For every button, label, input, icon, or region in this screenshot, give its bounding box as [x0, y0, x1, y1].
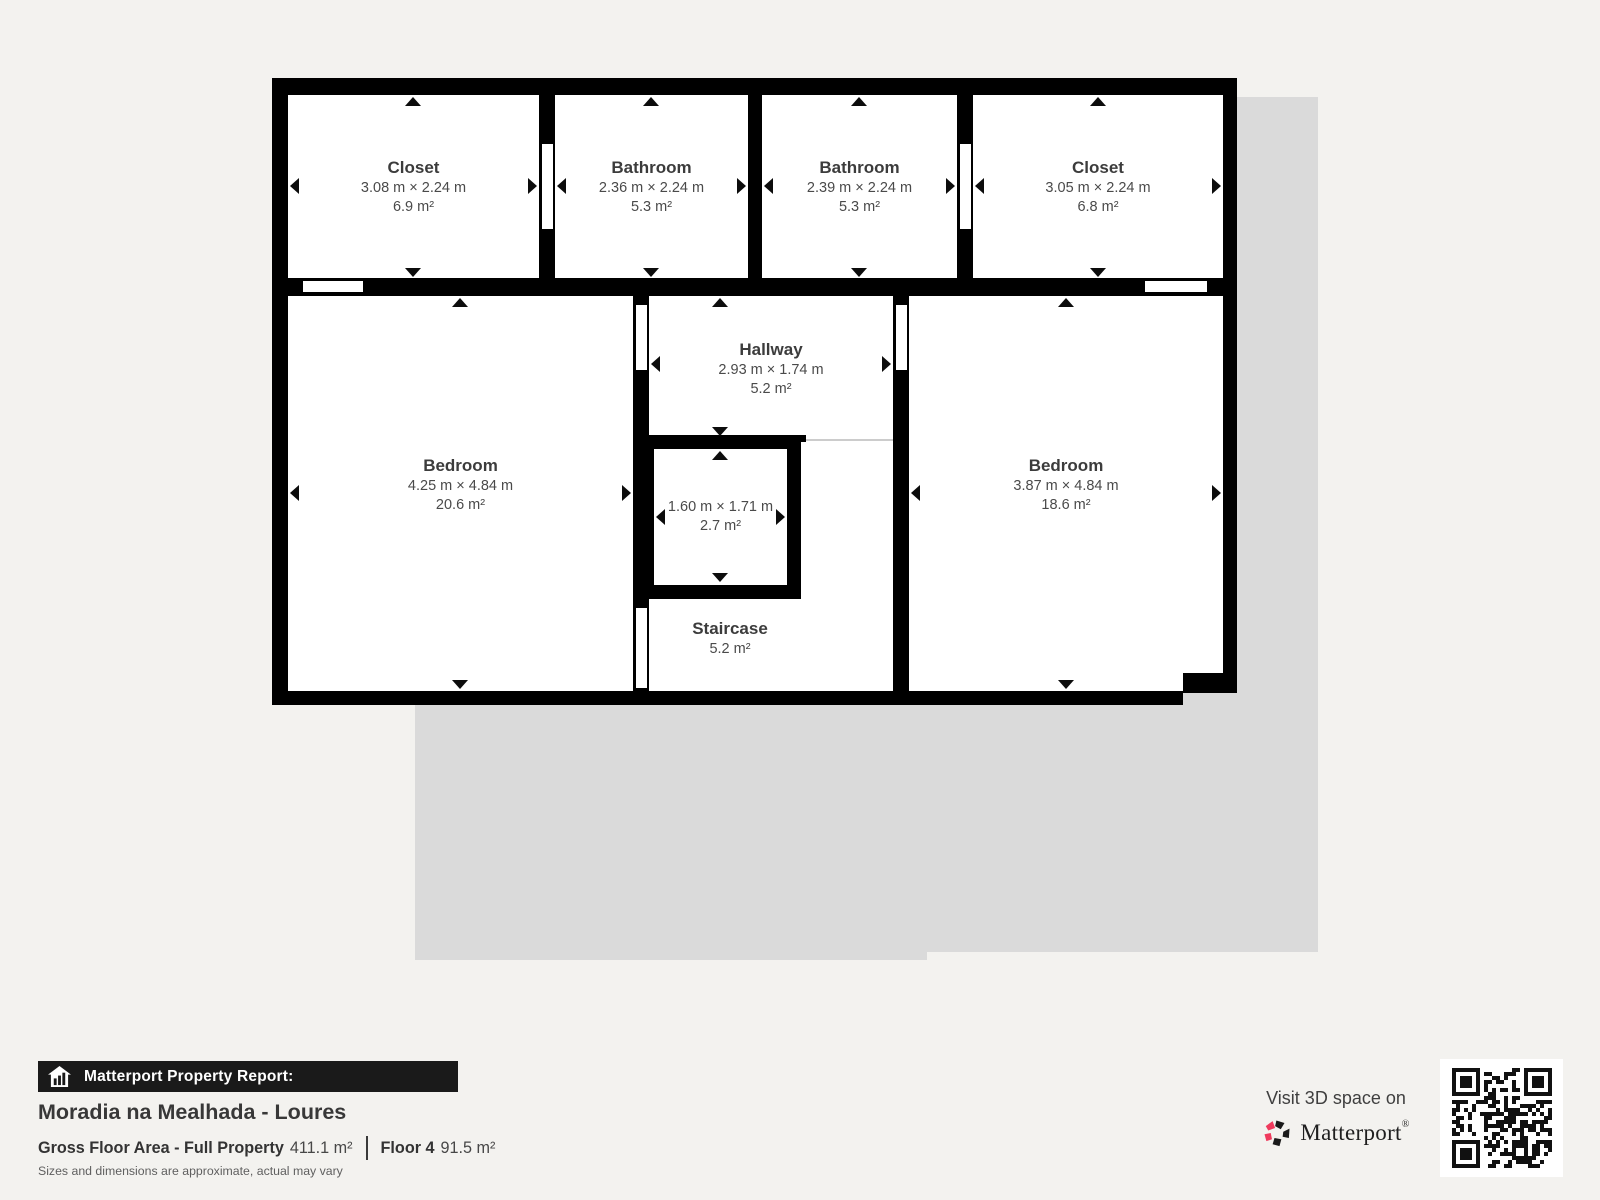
room-label-bedroom-right: Bedroom 3.87 m × 4.84 m 18.6 m² [909, 296, 1223, 672]
property-outline-silhouette [1237, 97, 1318, 705]
dimension-arrow-up-icon [1058, 298, 1074, 307]
qr-code [1452, 1068, 1552, 1168]
room-name: Bedroom [1029, 454, 1104, 477]
dimension-arrow-left-icon [290, 178, 299, 194]
room-area: 5.3 m² [839, 198, 880, 217]
room-area: 5.2 m² [750, 380, 791, 399]
door-opening [636, 608, 647, 688]
room-dimensions: 3.87 m × 4.84 m [1013, 477, 1118, 496]
room-dimensions: 2.39 m × 2.24 m [807, 179, 912, 198]
matterport-wordmark: Matterport® [1300, 1120, 1409, 1146]
room-area: 6.9 m² [393, 198, 434, 217]
gross-floor-area-label: Gross Floor Area - Full Property [38, 1139, 284, 1158]
dimension-arrow-down-icon [643, 268, 659, 277]
dimension-arrow-left-icon [290, 485, 299, 501]
dimension-arrow-up-icon [452, 298, 468, 307]
disclaimer-text: Sizes and dimensions are approximate, ac… [38, 1164, 343, 1178]
floor-label: Floor 4 [381, 1139, 435, 1158]
room-dimensions: 2.36 m × 2.24 m [599, 179, 704, 198]
door-opening [896, 305, 907, 370]
room-dimensions: 3.05 m × 2.24 m [1045, 179, 1150, 198]
dimension-arrow-down-icon [452, 680, 468, 689]
divider [366, 1136, 368, 1160]
property-name: Moradia na Mealhada - Loures [38, 1100, 346, 1125]
dimension-arrow-right-icon [528, 178, 537, 194]
room-name: Bathroom [611, 156, 691, 179]
room-name: Staircase [692, 617, 768, 640]
room-name: Bathroom [819, 156, 899, 179]
dimension-arrow-down-icon [851, 268, 867, 277]
room-label-small-room: 1.60 m × 1.71 m 2.7 m² [654, 449, 787, 585]
property-outline-silhouette [415, 952, 927, 960]
report-banner: Matterport Property Report: [38, 1061, 458, 1092]
dimension-arrow-right-icon [1212, 485, 1221, 501]
dimension-arrow-right-icon [737, 178, 746, 194]
house-chart-icon [48, 1066, 71, 1087]
dimension-arrow-down-icon [712, 427, 728, 436]
room-name: Closet [1072, 156, 1124, 179]
dimension-arrow-left-icon [557, 178, 566, 194]
dimension-arrow-right-icon [622, 485, 631, 501]
room-area: 20.6 m² [436, 496, 485, 515]
door-opening [303, 281, 363, 292]
room-area: 5.3 m² [631, 198, 672, 217]
room-area: 6.8 m² [1077, 198, 1118, 217]
matterport-pinwheel-icon [1262, 1118, 1292, 1148]
gross-floor-area-value: 411.1 m² [290, 1139, 353, 1158]
visit-3d-text: Visit 3D space on [1266, 1088, 1406, 1109]
property-outline-silhouette [1183, 693, 1237, 705]
dimension-arrow-down-icon [712, 573, 728, 582]
qr-card [1440, 1059, 1563, 1177]
room-area: 5.2 m² [709, 640, 750, 659]
dimension-arrow-left-icon [911, 485, 920, 501]
dimension-arrow-left-icon [764, 178, 773, 194]
room-area: 18.6 m² [1041, 496, 1090, 515]
dimension-arrow-down-icon [1058, 680, 1074, 689]
dimension-arrow-up-icon [712, 451, 728, 460]
dimension-arrow-up-icon [405, 97, 421, 106]
room-name: Bedroom [423, 454, 498, 477]
floor-area-value: 91.5 m² [441, 1139, 496, 1158]
room-label-bathroom-1: Bathroom 2.36 m × 2.24 m 5.3 m² [555, 95, 748, 278]
room-label-bathroom-2: Bathroom 2.39 m × 2.24 m 5.3 m² [762, 95, 957, 278]
door-opening [960, 144, 971, 229]
room-label-closet-1: Closet 3.08 m × 2.24 m 6.9 m² [288, 95, 539, 278]
room-dimensions: 1.60 m × 1.71 m [668, 498, 773, 517]
room-label-closet-2: Closet 3.05 m × 2.24 m 6.8 m² [973, 95, 1223, 278]
report-banner-label: Matterport Property Report: [84, 1068, 294, 1086]
dimension-arrow-right-icon [882, 356, 891, 372]
room-label-hallway: Hallway 2.93 m × 1.74 m 5.2 m² [649, 296, 893, 440]
trademark-symbol: ® [1402, 1119, 1410, 1130]
wall-corner-step [1183, 673, 1237, 693]
door-opening [636, 305, 647, 370]
dimension-arrow-up-icon [851, 97, 867, 106]
room-name: Hallway [739, 338, 802, 361]
room-name: Closet [388, 156, 440, 179]
dimension-arrow-down-icon [1090, 268, 1106, 277]
area-stats: Gross Floor Area - Full Property 411.1 m… [38, 1136, 495, 1160]
property-outline-silhouette [415, 705, 1318, 952]
dimension-arrow-right-icon [776, 509, 785, 525]
matterport-logo: Matterport® [1262, 1118, 1409, 1148]
room-dimensions: 3.08 m × 2.24 m [361, 179, 466, 198]
dimension-arrow-left-icon [651, 356, 660, 372]
dimension-arrow-up-icon [712, 298, 728, 307]
dimension-arrow-left-icon [656, 509, 665, 525]
room-label-bedroom-left: Bedroom 4.25 m × 4.84 m 20.6 m² [288, 296, 633, 672]
dimension-arrow-up-icon [1090, 97, 1106, 106]
room-dimensions: 2.93 m × 1.74 m [718, 361, 823, 380]
door-opening [542, 144, 553, 229]
dimension-arrow-left-icon [975, 178, 984, 194]
room-dimensions: 4.25 m × 4.84 m [408, 477, 513, 496]
dimension-arrow-right-icon [946, 178, 955, 194]
room-label-staircase: Staircase 5.2 m² [649, 612, 811, 664]
dimension-arrow-up-icon [643, 97, 659, 106]
room-area: 2.7 m² [700, 517, 741, 536]
visit-3d-promo: Visit 3D space on Matterport® [1250, 1088, 1422, 1148]
dimension-arrow-down-icon [405, 268, 421, 277]
dimension-arrow-right-icon [1212, 178, 1221, 194]
door-opening [1145, 281, 1207, 292]
